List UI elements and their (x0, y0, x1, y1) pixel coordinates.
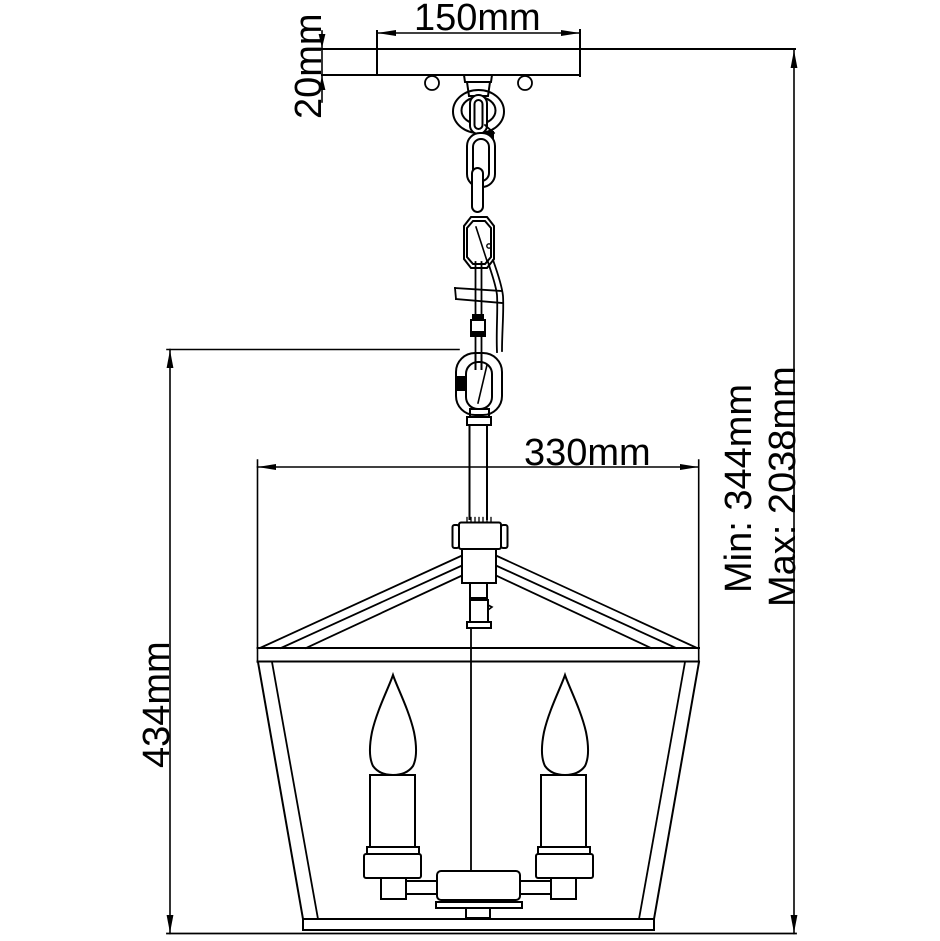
svg-text:434mm: 434mm (136, 641, 178, 768)
svg-text:Min: 344mm: Min: 344mm (718, 384, 760, 593)
svg-text:150mm: 150mm (414, 0, 541, 39)
svg-text:330mm: 330mm (524, 432, 651, 474)
svg-text:Max: 2038mm: Max: 2038mm (762, 366, 804, 607)
svg-text:20mm: 20mm (288, 13, 330, 119)
